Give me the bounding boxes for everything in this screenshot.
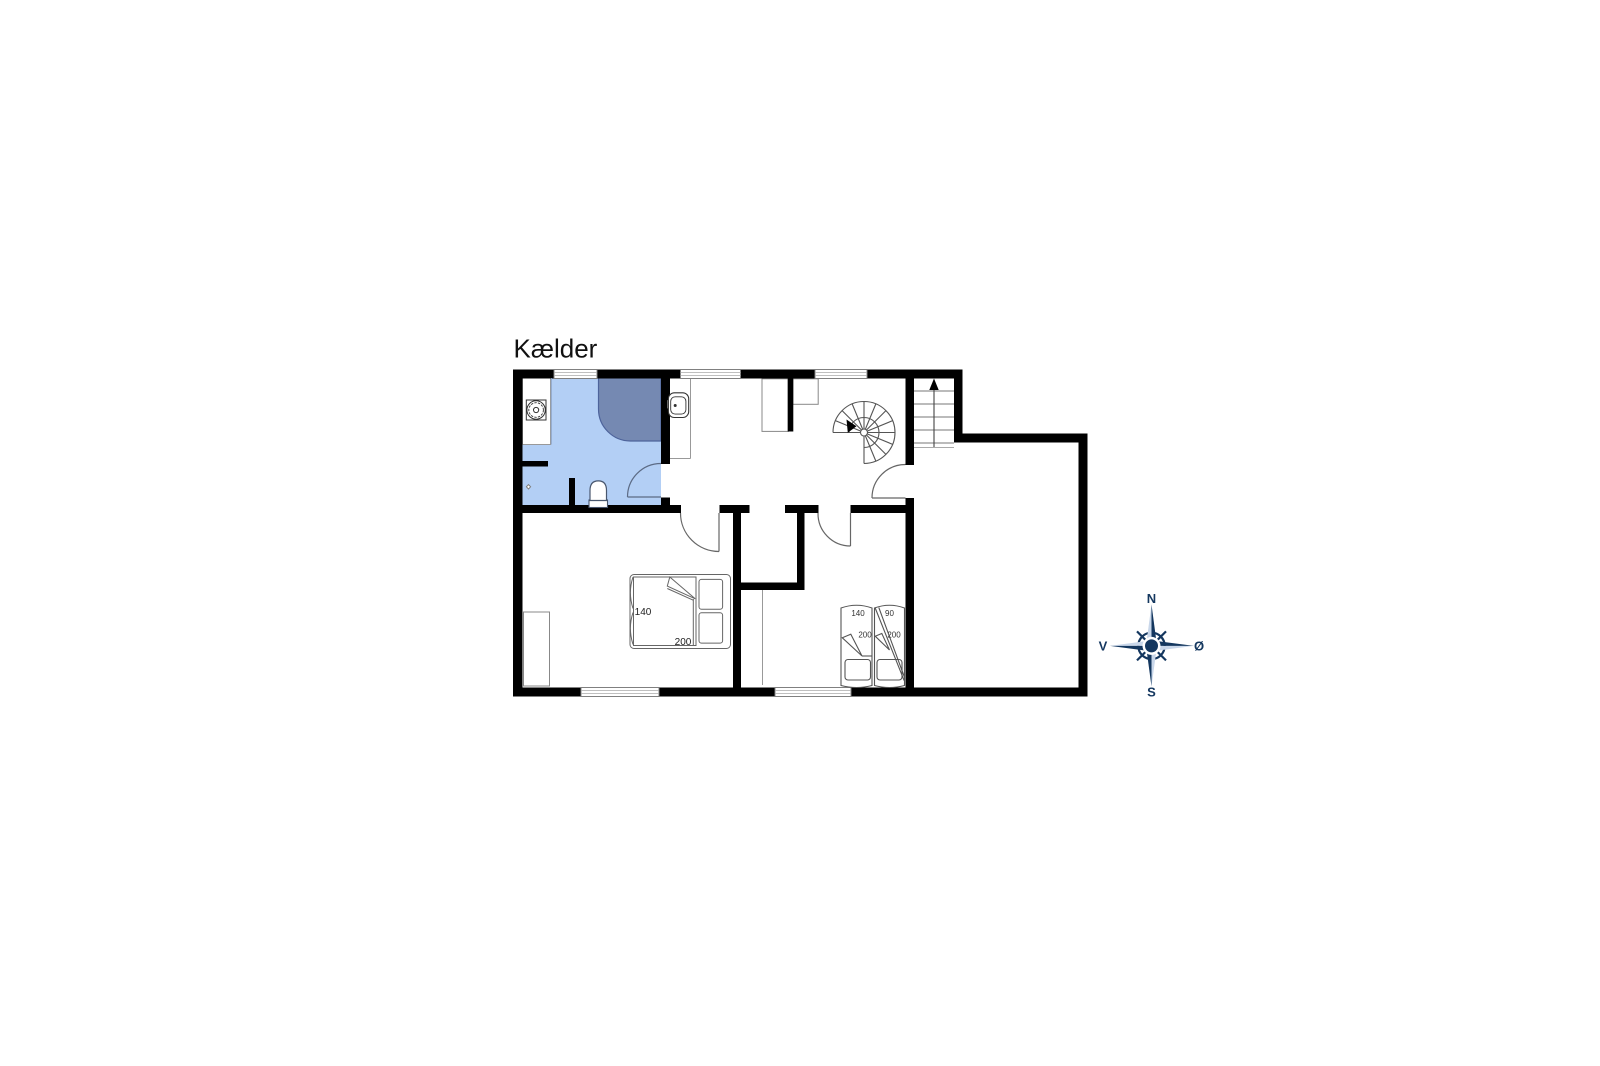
svg-text:200: 200	[675, 637, 692, 648]
svg-text:V: V	[1099, 639, 1108, 654]
svg-text:140: 140	[851, 609, 865, 618]
svg-text:140: 140	[635, 607, 652, 618]
svg-text:Ø: Ø	[1194, 639, 1204, 654]
svg-text:S: S	[1147, 685, 1156, 700]
svg-text:200: 200	[858, 631, 872, 640]
svg-text:Kælder: Kælder	[514, 334, 598, 364]
svg-text:90: 90	[885, 609, 894, 618]
svg-text:N: N	[1147, 591, 1156, 606]
svg-text:200: 200	[887, 631, 901, 640]
